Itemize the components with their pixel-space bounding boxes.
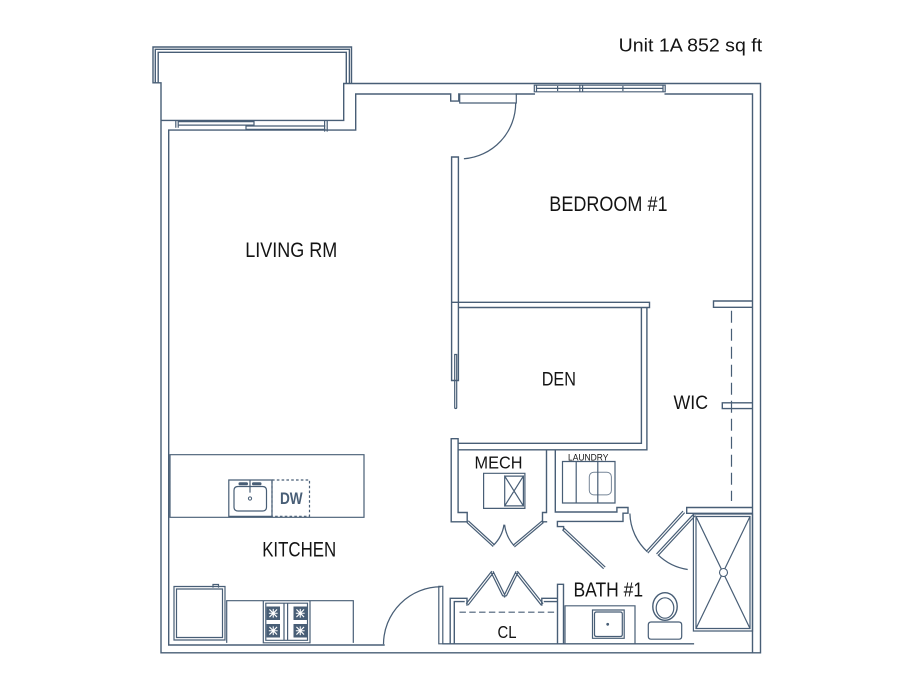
svg-text:BATH #1: BATH #1 [573,579,643,601]
svg-text:LIVING RM: LIVING RM [245,238,337,262]
svg-text:LAUNDRY: LAUNDRY [568,453,608,463]
svg-text:KITCHEN: KITCHEN [262,538,336,561]
svg-text:CL: CL [498,622,517,642]
svg-text:MECH: MECH [475,453,523,473]
svg-text:DEN: DEN [542,368,576,390]
svg-text:DW: DW [280,490,303,508]
svg-text:WIC: WIC [674,392,709,414]
svg-text:BEDROOM #1: BEDROOM #1 [549,192,667,216]
svg-text:Unit 1A 852 sq ft: Unit 1A 852 sq ft [619,35,763,55]
